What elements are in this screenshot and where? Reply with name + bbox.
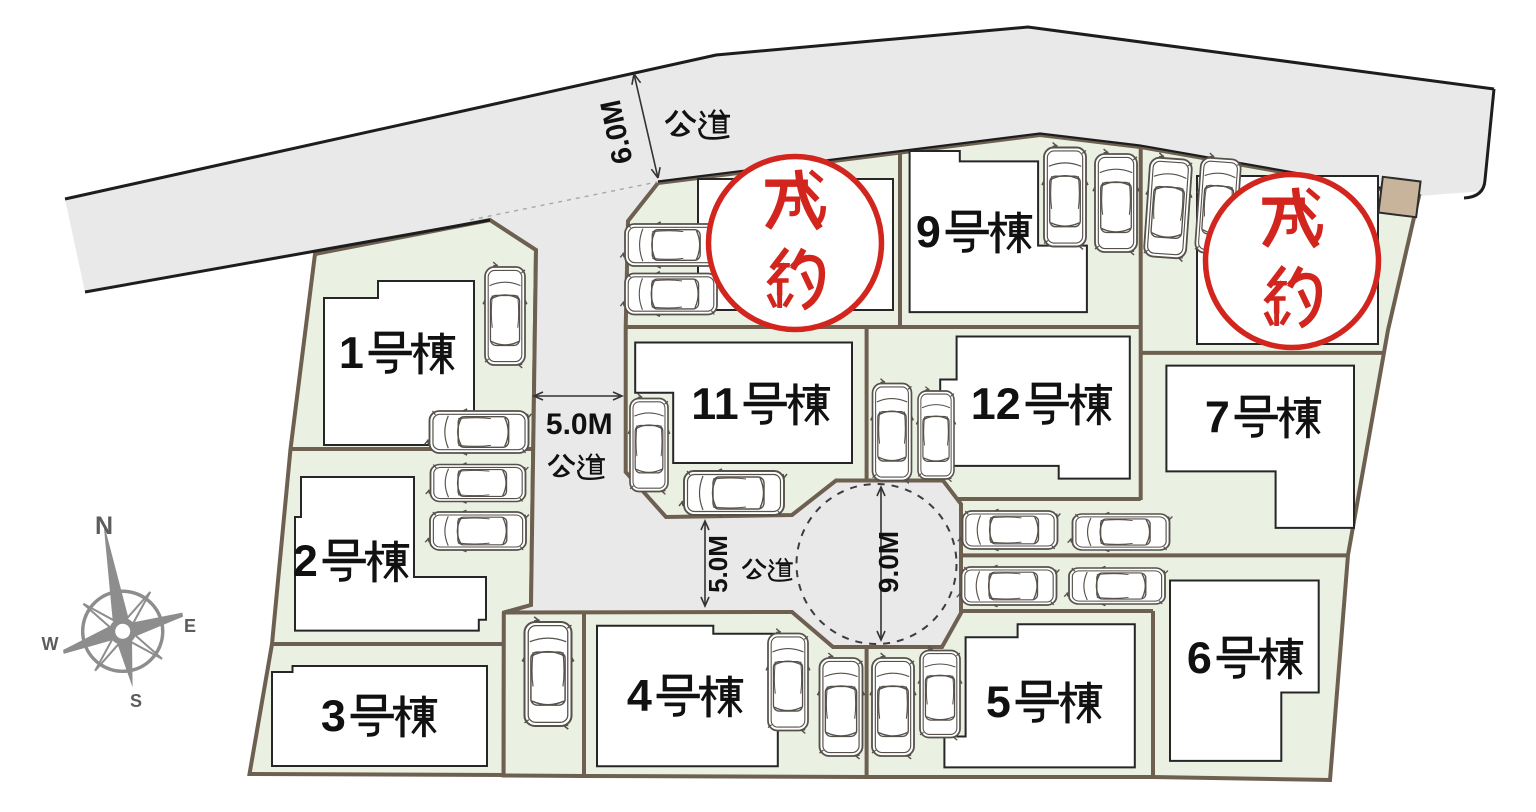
svg-text:5: 5 — [986, 676, 1011, 727]
svg-text:S: S — [130, 691, 142, 711]
svg-text:11: 11 — [691, 378, 738, 429]
svg-text:N: N — [95, 512, 113, 540]
svg-text:5.0M: 5.0M — [703, 535, 733, 593]
svg-text:2: 2 — [293, 535, 318, 586]
svg-text:1: 1 — [339, 327, 364, 378]
svg-text:9.0M: 9.0M — [873, 531, 904, 593]
svg-text:4: 4 — [627, 670, 652, 721]
svg-text:7: 7 — [1205, 391, 1230, 442]
svg-text:6: 6 — [1187, 632, 1212, 683]
svg-text:3: 3 — [321, 690, 346, 741]
svg-text:E: E — [184, 616, 196, 636]
svg-text:W: W — [42, 634, 59, 654]
svg-text:5.0M: 5.0M — [546, 408, 613, 441]
svg-text:12: 12 — [971, 378, 1021, 429]
svg-text:9: 9 — [916, 206, 941, 257]
